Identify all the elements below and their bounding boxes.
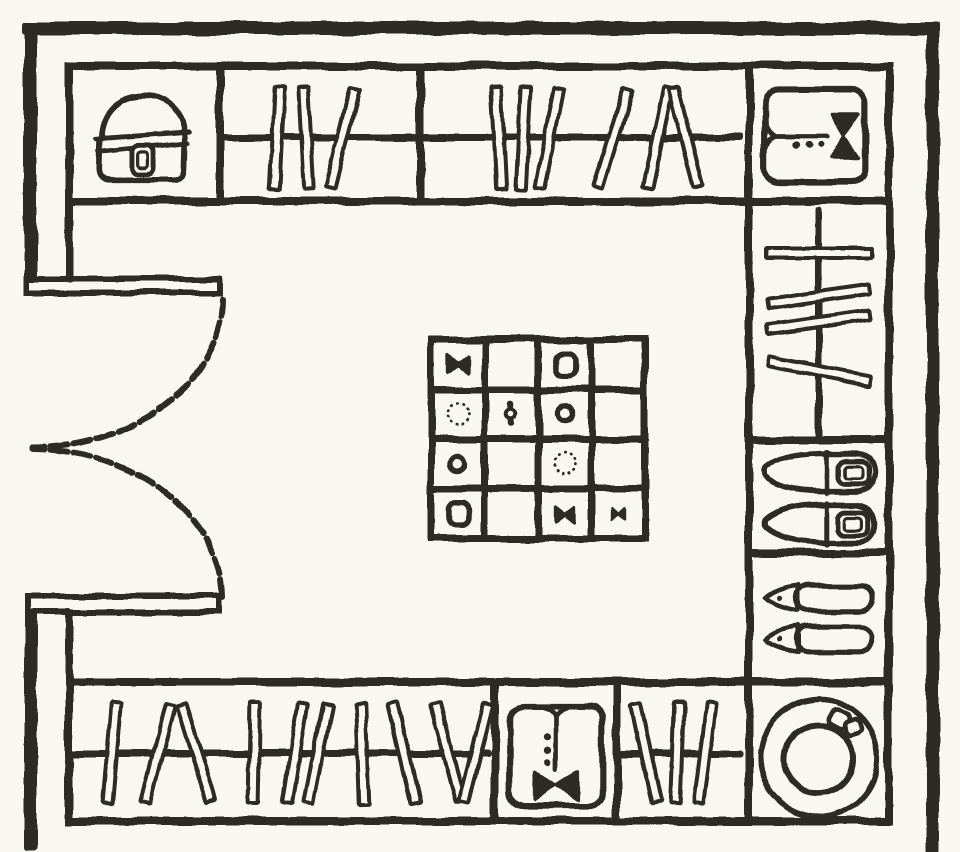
island-cell [435,393,481,436]
wall-inner-left-lower [65,608,73,684]
pointed-flats-icon [756,573,884,665]
dotted-circle-icon [442,398,474,430]
rounded-box-icon [549,348,581,380]
island-cell [488,393,534,436]
door-jamb-top [24,276,222,296]
door-leaf-arc-bottom [32,449,222,597]
wall-outer-left-lower [24,598,37,852]
island-cell [488,343,534,386]
island-cell [542,393,588,436]
ring-icon [442,448,474,480]
right-band-divider [745,549,893,557]
island-cell [595,343,641,386]
island-cell [542,343,588,386]
closet-floor-plan [0,0,960,852]
island-cell [488,443,534,486]
rounded-box-icon [442,498,474,530]
handbag-icon [82,79,204,197]
accessory-island [428,336,648,542]
folded-shirt-icon [758,83,872,189]
hanging-rod [71,750,491,757]
bottom-band-divider [491,678,499,825]
barbell-icon [495,398,527,430]
bowtie-small-icon [607,503,629,525]
hanging-rod [619,750,743,757]
buckled-shoes-icon [754,448,890,548]
folded-shirt-icon [504,697,608,815]
wall-outer-left-upper [24,22,37,284]
hanging-rod [815,207,822,438]
door-jamb-bottom [24,593,222,615]
door-leaf-arc-top [32,299,222,447]
wall-outer-right [926,22,939,852]
hat-icon [750,686,888,824]
island-cell [595,443,641,486]
bowtie-icon [549,498,581,530]
island-cell [435,492,481,535]
bowtie-icon [442,348,474,380]
island-cell [488,492,534,535]
ring-icon [549,398,581,430]
island-cell [595,492,641,535]
right-band-divider [745,197,893,205]
island-cell [542,492,588,535]
hanging-rod [222,134,418,141]
right-band-divider [745,678,893,686]
wall-inner-left-upper [65,197,73,283]
wall-outer-top [22,22,939,35]
island-cell [595,393,641,436]
plan-drawing [0,0,960,852]
dotted-circle-icon [549,448,581,480]
island-cell [542,443,588,486]
island-cell [435,443,481,486]
island-cell [435,343,481,386]
hanging-rod [422,134,743,141]
